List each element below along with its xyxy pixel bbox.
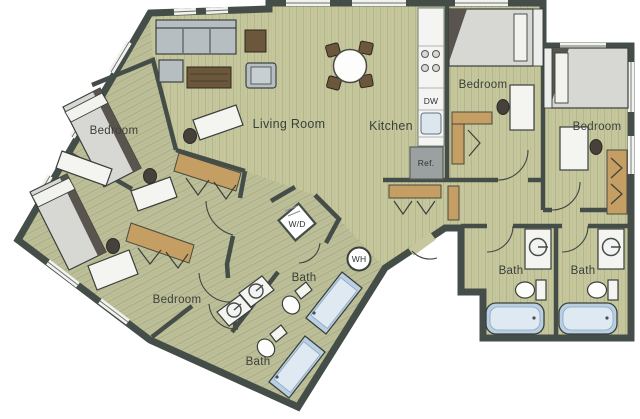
room-label-bedroom-2: Bedroom (153, 294, 202, 306)
headboard (544, 48, 552, 108)
dishwasher-label: DW (424, 96, 439, 106)
room-label-bath-4: Bath (571, 265, 596, 277)
room-label-bedroom-1: Bedroom (90, 125, 139, 137)
room-label-bath-1: Bath (292, 272, 317, 284)
ottoman (159, 60, 183, 82)
desk-chair (497, 100, 509, 115)
toilet-icon (516, 282, 535, 298)
kitchen-sink-icon (421, 113, 441, 134)
pillow (514, 14, 527, 61)
floor-plan: DW Ref. W/D WH (0, 0, 640, 419)
bedroom4-closet (607, 150, 627, 214)
sofa (156, 28, 236, 54)
room-label-bath-3: Bath (499, 265, 524, 277)
desk-chair (107, 239, 120, 254)
water-heater-label: WH (352, 254, 367, 264)
bedroom3-closet-side (452, 124, 464, 164)
desk-chair (590, 140, 602, 155)
bedroom3-closet-shelf (452, 112, 492, 124)
washer-dryer-label: W/D (288, 219, 305, 229)
desk (510, 85, 534, 130)
hall-closet (389, 185, 441, 198)
desk-chair (144, 169, 157, 184)
pillow (555, 53, 568, 103)
side-table (245, 30, 266, 52)
toilet-tank (536, 280, 546, 300)
room-label-bedroom-4: Bedroom (573, 121, 622, 133)
toilet-icon (588, 282, 607, 298)
dining-table (334, 50, 367, 83)
room-label-living-room: Living Room (253, 117, 326, 131)
room-label-bath-2: Bath (246, 356, 271, 368)
room-label-kitchen: Kitchen (369, 119, 413, 133)
toilet-tank (608, 280, 618, 300)
desk-chair (184, 129, 197, 144)
desk (560, 127, 588, 170)
headboard (533, 9, 543, 66)
refrigerator-label: Ref. (418, 158, 434, 168)
room-label-bedroom-3: Bedroom (459, 79, 508, 91)
hall-closet-2 (448, 186, 459, 220)
coffee-table (187, 67, 231, 88)
